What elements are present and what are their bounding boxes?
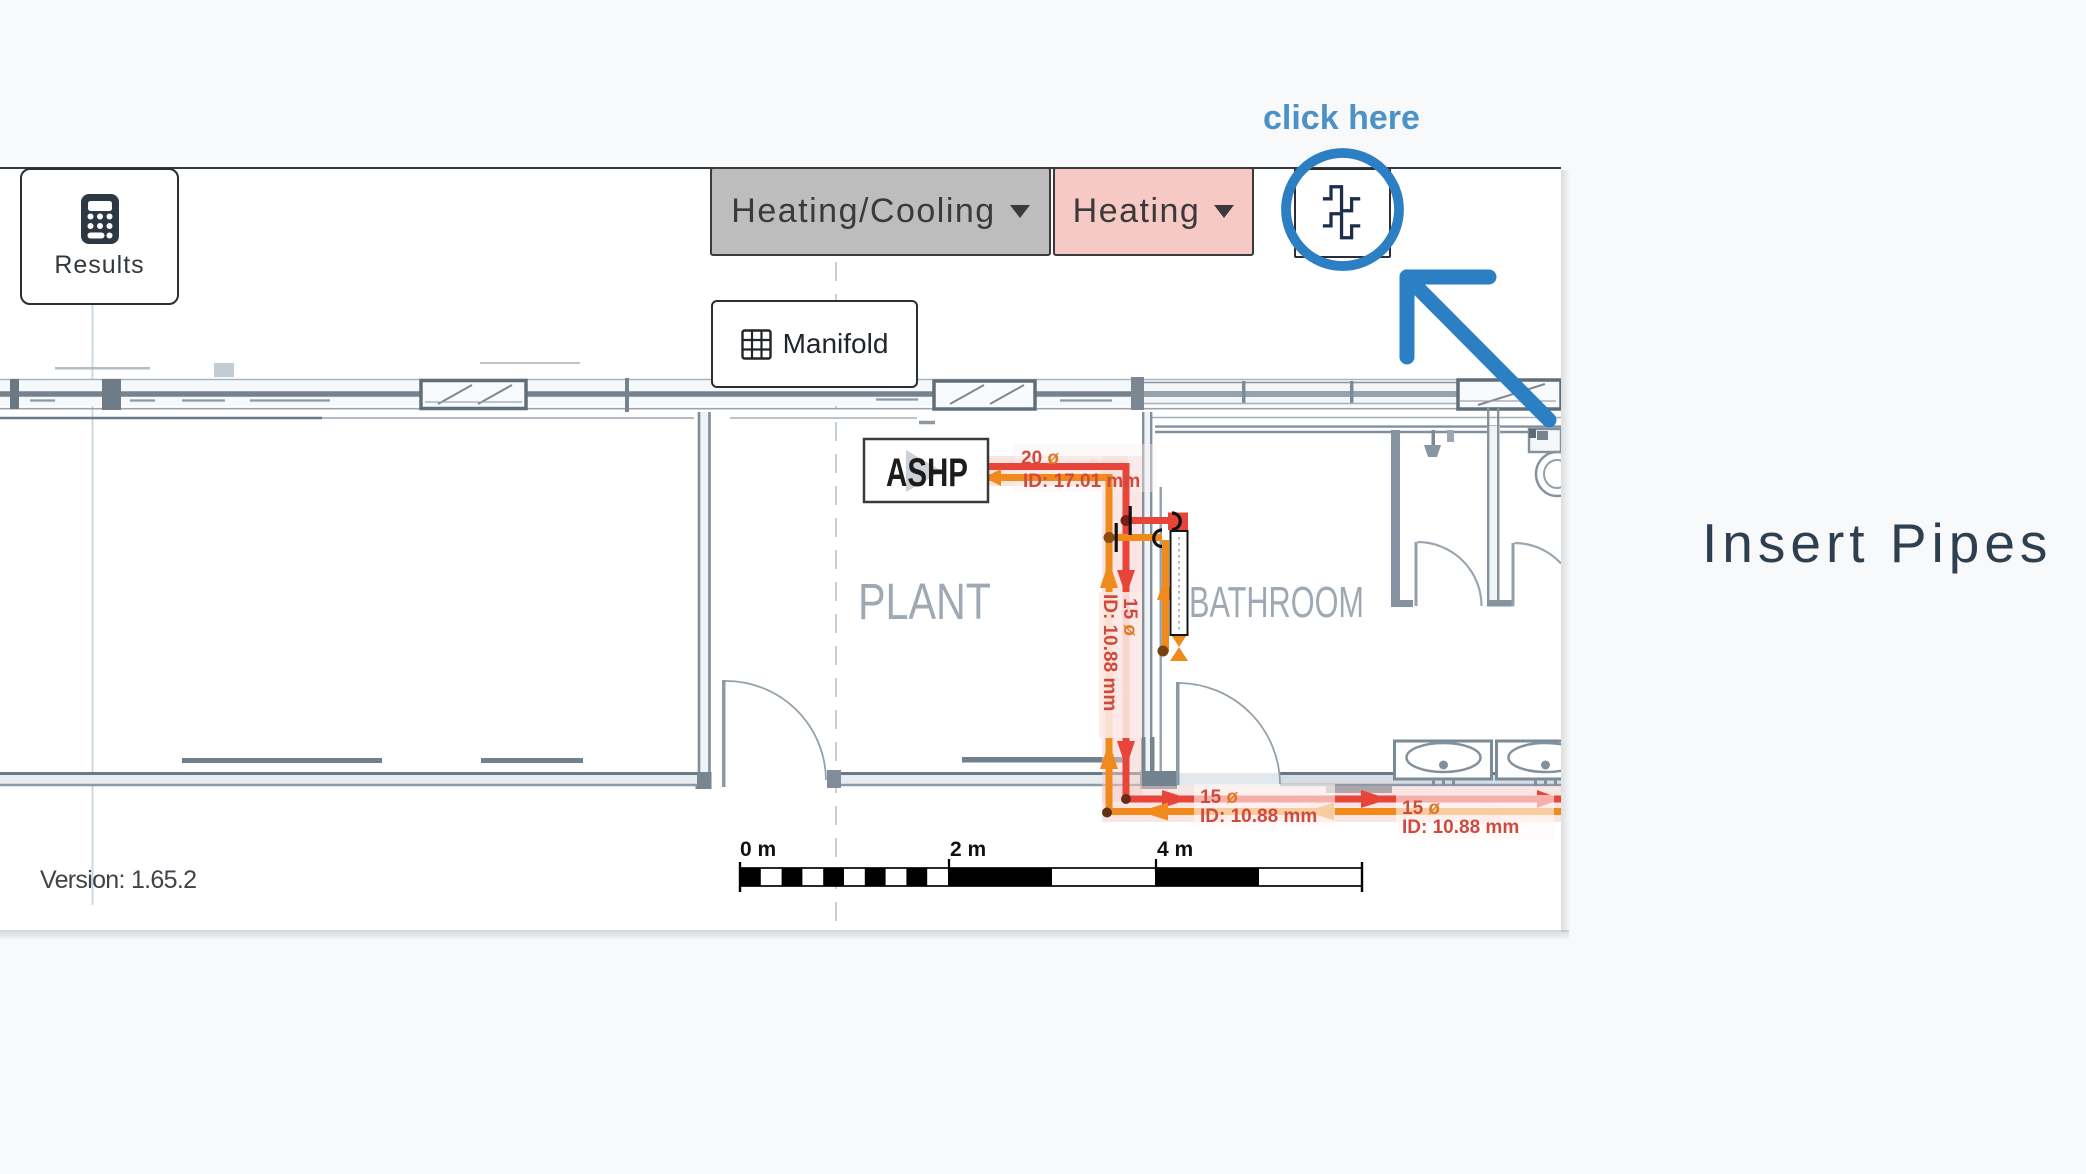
svg-text:ID: 17.01 mm: ID: 17.01 mm	[1023, 471, 1140, 492]
svg-text:2 m: 2 m	[950, 838, 986, 861]
svg-text:15 ø: 15 ø	[1119, 598, 1140, 636]
svg-text:20 ø: 20 ø	[1021, 448, 1059, 469]
svg-text:ID: 10.88 mm: ID: 10.88 mm	[1099, 594, 1120, 711]
svg-text:ASHP: ASHP	[886, 451, 968, 495]
svg-text:ID: 10.88 mm: ID: 10.88 mm	[1200, 806, 1317, 827]
svg-text:PLANT: PLANT	[858, 573, 991, 630]
svg-text:15 ø: 15 ø	[1402, 798, 1440, 819]
svg-text:4 m: 4 m	[1157, 838, 1193, 861]
svg-text:0 m: 0 m	[740, 838, 776, 861]
svg-text:15 ø: 15 ø	[1200, 787, 1238, 808]
svg-text:ID: 10.88 mm: ID: 10.88 mm	[1402, 817, 1519, 838]
svg-text:BATHROOM: BATHROOM	[1189, 578, 1364, 627]
